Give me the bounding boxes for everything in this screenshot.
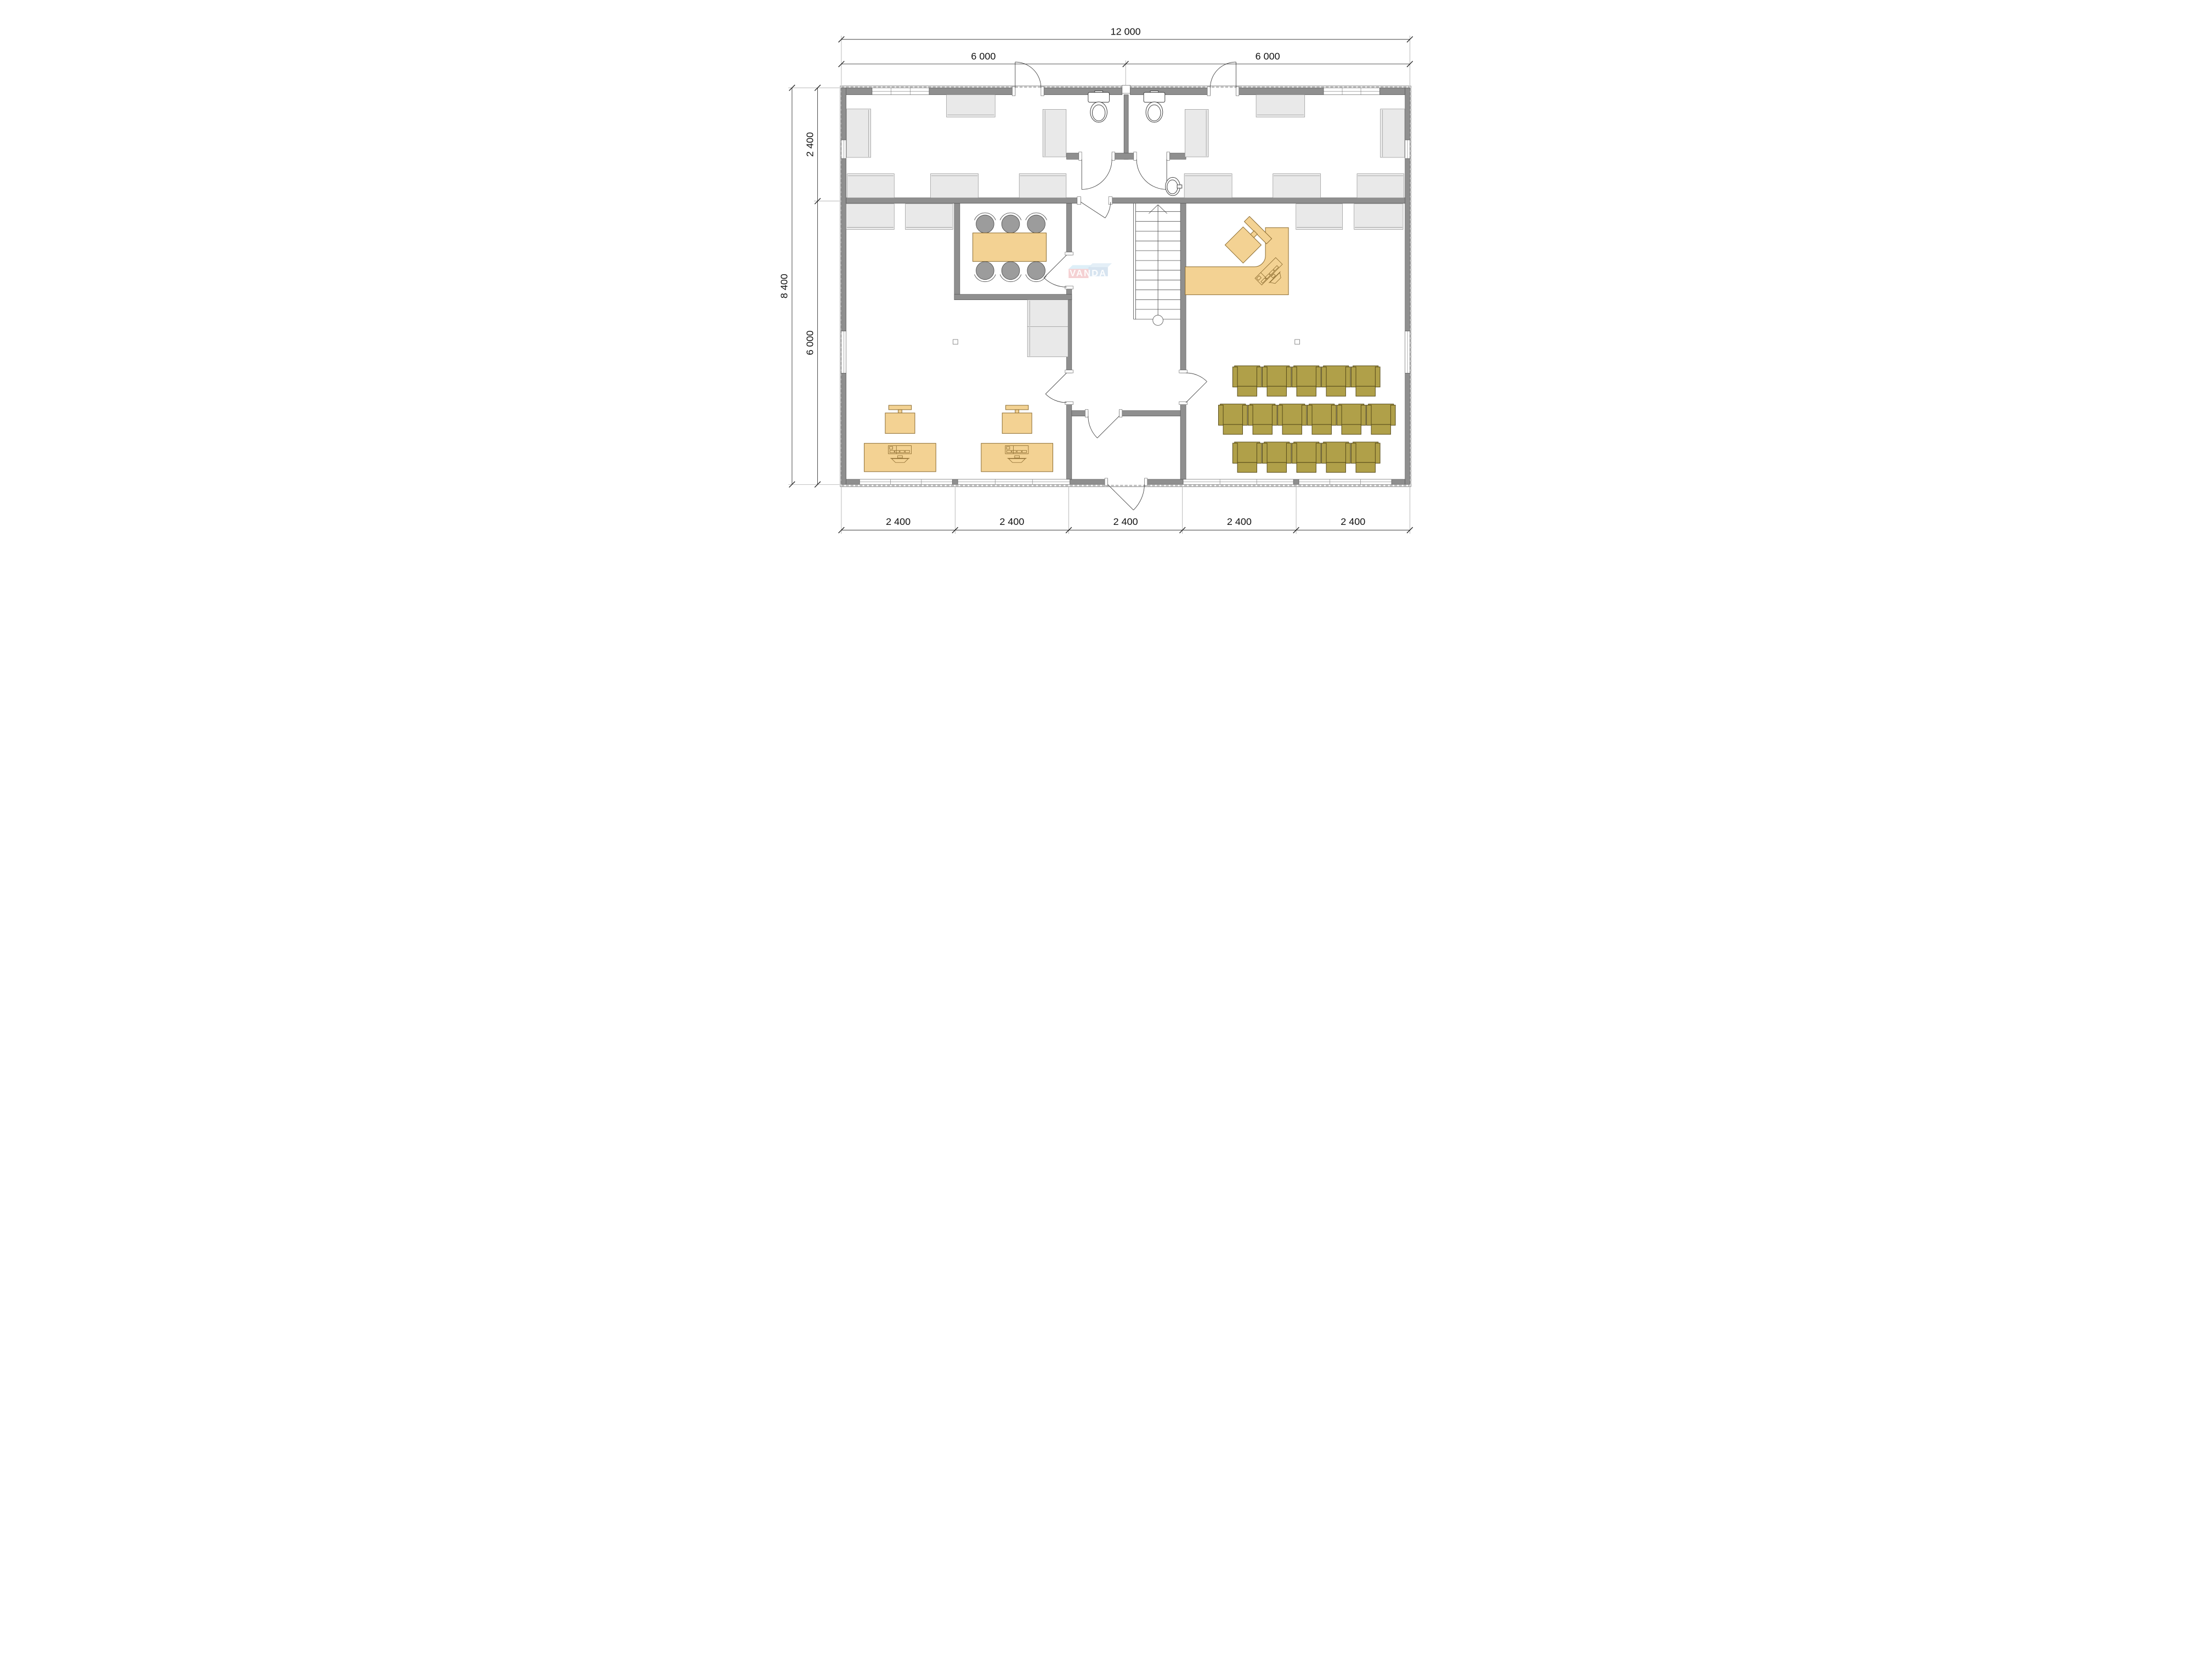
dim-label: 2 400 (886, 516, 911, 527)
auditorium-chair (1232, 442, 1262, 472)
wall-right (1405, 88, 1410, 140)
dim-top-halves: 6 000 6 000 (838, 50, 1412, 67)
dim-label: 2 400 (804, 132, 815, 157)
auditorium-chair (1321, 442, 1350, 472)
meeting-chair (974, 213, 996, 233)
meeting-chair (1025, 213, 1047, 233)
sanitary (1088, 91, 1181, 196)
meeting-chair (1025, 262, 1047, 282)
wall-bottom (846, 479, 859, 484)
auditorium-chair (1277, 404, 1307, 434)
dim-label: 12 000 (1110, 26, 1140, 37)
auditorium-chair (1232, 366, 1262, 396)
dim-label: 2 400 (1226, 516, 1251, 527)
wall-left (841, 159, 846, 331)
wall-right (1405, 373, 1410, 484)
meeting-room-set (972, 213, 1047, 282)
auditorium-chair (1351, 366, 1380, 396)
wall-left (841, 88, 846, 140)
watermark-box-top (1088, 263, 1112, 267)
wall-corridor-right (1180, 403, 1186, 479)
window (1324, 88, 1379, 95)
wall-top (846, 88, 872, 95)
auditorium-chair (1351, 442, 1380, 472)
exterior-door-top-right (1210, 62, 1236, 88)
window (1183, 479, 1293, 484)
column-marker (1294, 340, 1299, 344)
watermark-text: VANDA (1070, 268, 1107, 278)
floor-plan-page: 12 000 6 000 6 000 8 400 2 400 6 000 (732, 0, 1463, 560)
wall-bottom (1070, 479, 1107, 484)
wall-left (841, 373, 846, 484)
auditorium-chair (1262, 442, 1291, 472)
dim-label: 8 400 (778, 274, 789, 298)
sink (1165, 177, 1181, 195)
floor-plan-drawing: 12 000 6 000 6 000 8 400 2 400 6 000 (732, 0, 1463, 560)
auditorium-chair (1307, 404, 1336, 434)
dim-label: 6 000 (971, 50, 996, 61)
wall-top (1130, 88, 1210, 95)
wall-interior-main (1112, 198, 1405, 203)
window (872, 88, 929, 95)
hall-door (1081, 202, 1110, 218)
exterior-door-top-left (1015, 62, 1041, 88)
auditorium-chairs (1218, 366, 1395, 472)
auditorium-chair (1337, 404, 1366, 434)
vanda-watermark: VANDA (1068, 263, 1112, 278)
reception-area (1185, 217, 1288, 295)
wall-corridor-left (1066, 203, 1071, 255)
staircase (1133, 203, 1180, 326)
window (1405, 140, 1410, 159)
auditorium-chair (1262, 366, 1291, 396)
wall-top (1379, 88, 1405, 95)
wall-top (929, 88, 1015, 95)
wall-wc-partition (1124, 95, 1128, 160)
wall-right (1405, 159, 1410, 331)
dim-left-total: 8 400 (778, 85, 795, 488)
dim-left-split: 2 400 6 000 (804, 85, 821, 488)
auditorium-chair (1321, 366, 1350, 396)
wall-wc (1112, 153, 1136, 159)
window (1405, 331, 1410, 374)
toilet (1088, 91, 1109, 122)
wall-corridor-left (1066, 403, 1071, 479)
auditorium-chair (1218, 404, 1247, 434)
dim-label: 6 000 (804, 330, 815, 355)
meeting-table (972, 233, 1046, 262)
dim-top-total: 12 000 (838, 26, 1412, 42)
entrance-door (1107, 484, 1144, 510)
dim-bottom: 2 400 2 400 2 400 2 400 2 400 (838, 516, 1412, 533)
vestibule-door (1088, 416, 1119, 438)
reception-chair (1223, 217, 1271, 265)
stair-start-marker (1152, 315, 1163, 326)
toilet (1144, 91, 1165, 122)
wall-meeting-left (954, 203, 959, 300)
meeting-chair (1000, 213, 1021, 233)
meeting-room-door (1044, 255, 1066, 287)
desk-with-chair (981, 405, 1053, 472)
auditorium-chair (1292, 442, 1321, 472)
dim-label: 2 400 (1341, 516, 1365, 527)
auditorium-chair (1366, 404, 1395, 434)
top-wall-vent (1122, 85, 1130, 93)
auditorium-chair (1292, 366, 1321, 396)
wall-bottom (1392, 479, 1405, 484)
auditorium-chair (1248, 404, 1277, 434)
desk-with-chair (864, 405, 936, 472)
wall-interior-main (846, 198, 1081, 203)
dim-label: 2 400 (1113, 516, 1138, 527)
dim-label: 2 400 (999, 516, 1024, 527)
meeting-chair (974, 262, 996, 282)
column-marker (953, 340, 958, 344)
wall-meeting-bottom (954, 295, 1071, 300)
wall-top (1041, 88, 1122, 95)
wc-door-right (1136, 159, 1167, 189)
wall-top (1236, 88, 1324, 95)
wall-bottom-post (1293, 479, 1299, 484)
wall-vestibule (1119, 411, 1180, 416)
workstations (864, 405, 1053, 472)
dim-label: 6 000 (1255, 50, 1280, 61)
office-left-door (1045, 373, 1066, 403)
wc-door-left (1082, 159, 1112, 189)
window (841, 331, 846, 374)
meeting-chair (1000, 262, 1021, 282)
window (841, 140, 846, 159)
window (1299, 479, 1392, 484)
window (859, 479, 952, 484)
wall-bottom-post (952, 479, 958, 484)
wall-bottom (1144, 479, 1183, 484)
window (958, 479, 1070, 484)
office-right-door (1186, 373, 1207, 403)
